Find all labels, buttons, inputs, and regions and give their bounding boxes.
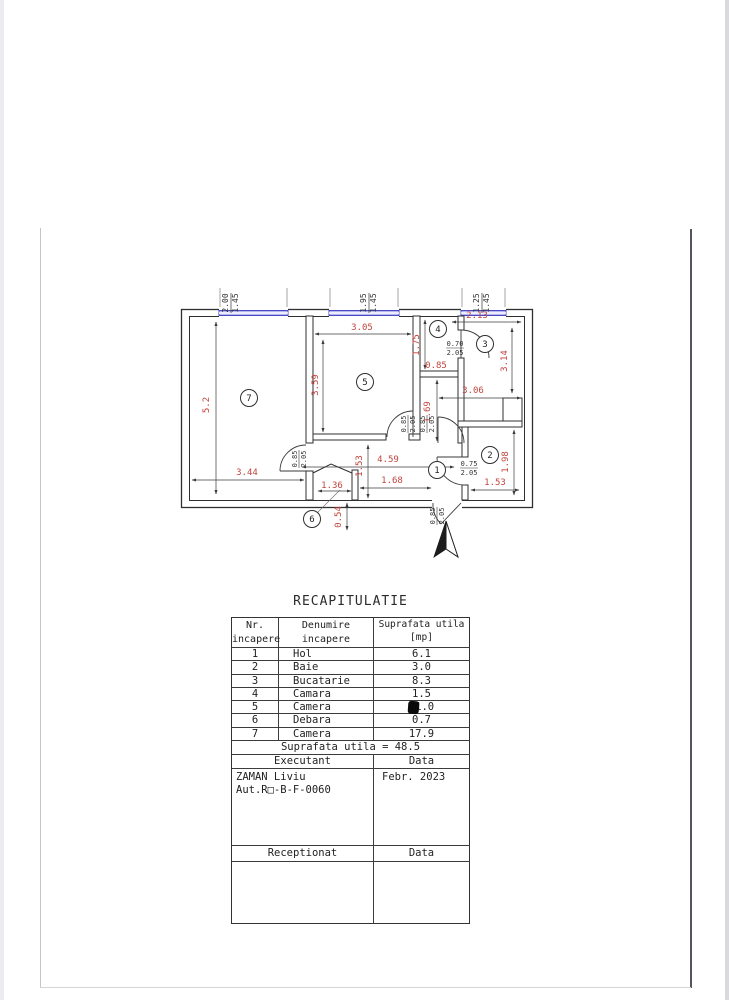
receptionat-label: Receptionat: [232, 846, 374, 861]
header-suprafata-line2: [mp]: [374, 632, 469, 645]
svg-text:3.05: 3.05: [351, 323, 373, 333]
door-label-channel: 0.85 2.05: [419, 415, 436, 433]
svg-text:1.36: 1.36: [321, 481, 343, 491]
header-nr-line2: incapere: [232, 633, 278, 647]
header-nr-line1: Nr.: [232, 619, 278, 633]
svg-text:2.05: 2.05: [409, 416, 417, 433]
scan-edge-left: [0, 0, 4, 1000]
entry-opening: [432, 498, 462, 509]
debara-door-symbol: [313, 464, 352, 473]
svg-text:2.05: 2.05: [447, 349, 464, 357]
svg-text:3.14: 3.14: [500, 350, 510, 372]
svg-text:2.00: 2.00: [221, 293, 230, 312]
executant-date: Febr. 2023: [374, 769, 469, 845]
table-row: 5 Camera 11.0: [232, 701, 469, 714]
svg-text:3.06: 3.06: [462, 386, 484, 396]
page-title: RECAPITULATIE: [231, 594, 470, 609]
svg-text:2.05: 2.05: [428, 416, 436, 433]
svg-text:1.95: 1.95: [359, 293, 368, 312]
svg-text:0.70: 0.70: [447, 340, 464, 348]
svg-text:0.85: 0.85: [425, 361, 447, 371]
signature-row: ZAMAN Liviu Aut.R□-B-F-0060 Febr. 2023: [232, 769, 469, 846]
svg-text:1.25: 1.25: [472, 293, 481, 312]
svg-text:1.53: 1.53: [355, 455, 365, 477]
svg-text:0.85: 0.85: [419, 416, 427, 433]
svg-text:7: 7: [246, 394, 251, 404]
svg-text:1.45: 1.45: [482, 293, 491, 312]
room-number-6: 6: [304, 511, 321, 528]
svg-text:1.53: 1.53: [484, 478, 506, 488]
room-number-3: 3: [477, 336, 494, 353]
table-row: 2 Baie 3.0: [232, 661, 469, 674]
executant-row: Executant Data: [232, 755, 469, 769]
svg-text:1.45: 1.45: [231, 293, 240, 312]
table-row: 3 Bucatarie 8.3: [232, 675, 469, 688]
north-arrow-icon: [434, 521, 458, 557]
svg-text:0.85: 0.85: [429, 508, 437, 525]
svg-text:4.59: 4.59: [377, 455, 399, 465]
svg-text:0.54: 0.54: [334, 506, 344, 528]
total-row: Suprafata utila = 48.5: [232, 741, 469, 755]
svg-text:5: 5: [362, 378, 367, 388]
svg-text:0.85: 0.85: [291, 451, 299, 468]
svg-text:2.05: 2.05: [461, 469, 478, 477]
door-label-camara: 0.70 2.05: [446, 340, 464, 357]
svg-text:2.13: 2.13: [466, 311, 488, 321]
window-label-1: 2.00 1.45: [221, 293, 240, 313]
door-label-room7: 0.85 2.05: [291, 450, 308, 468]
svg-text:3.44: 3.44: [236, 468, 258, 478]
recap-table: Nr. incapere Denumire incapere Suprafata…: [231, 617, 470, 924]
svg-text:1.75: 1.75: [412, 334, 422, 356]
room-number-1: 1: [429, 462, 446, 479]
room-number-5: 5: [357, 374, 374, 391]
svg-text:6: 6: [309, 515, 314, 525]
receptionat-data-label: Data: [374, 846, 469, 861]
svg-text:2.05: 2.05: [300, 451, 308, 468]
table-row: 1 Hol 6.1: [232, 648, 469, 661]
header-denumire-line1: Denumire: [279, 619, 373, 633]
receptionat-row: Receptionat Data: [232, 846, 469, 862]
svg-text:1.68: 1.68: [381, 476, 403, 486]
svg-text:0.85: 0.85: [400, 416, 408, 433]
svg-text:2: 2: [487, 451, 492, 461]
signature-empty-row: [232, 862, 469, 924]
page-frame-left: [40, 228, 41, 987]
table-header-row: Nr. incapere Denumire incapere Suprafata…: [232, 618, 469, 648]
page-frame-right: [690, 229, 692, 988]
room-number-2: 2: [482, 447, 499, 464]
scan-edge-right: [725, 0, 729, 1000]
table-row: 4 Camara 1.5: [232, 688, 469, 701]
door-label-baie: 0.75 2.05: [460, 460, 478, 477]
door-label-entry: 0.85 2.05: [429, 507, 446, 525]
svg-text:2.05: 2.05: [438, 508, 446, 525]
door-label-room5: 0.85 2.05: [400, 415, 417, 433]
svg-text:4: 4: [435, 325, 440, 335]
svg-text:3.59: 3.59: [311, 374, 321, 396]
svg-text:0.75: 0.75: [461, 460, 478, 468]
svg-text:1.98: 1.98: [501, 451, 511, 473]
svg-text:3: 3: [482, 340, 487, 350]
svg-text:1: 1: [434, 466, 439, 476]
table-row: 7 Camera 17.9: [232, 728, 469, 741]
header-denumire-line2: incapere: [279, 633, 373, 647]
page-frame-bottom: [40, 987, 691, 988]
executant-authorization: Aut.R□-B-F-0060: [236, 784, 373, 797]
svg-text:5.2: 5.2: [202, 397, 212, 413]
floor-plan: 2.00 1.45 1.95 1.45 1.25 1.45: [150, 265, 580, 575]
room-number-4: 4: [430, 321, 447, 338]
window-label-3: 1.25 1.45: [472, 293, 491, 313]
ink-blot: [408, 701, 420, 715]
executant-name: ZAMAN Liviu: [236, 771, 373, 784]
window-label-2: 1.95 1.45: [359, 293, 378, 313]
table-row: 6 Debara 0.7: [232, 714, 469, 727]
header-suprafata-line1: Suprafata utila: [374, 619, 469, 632]
executant-data-label: Data: [374, 755, 469, 768]
executant-label: Executant: [232, 755, 374, 768]
room-number-7: 7: [241, 390, 258, 407]
svg-text:1.45: 1.45: [369, 293, 378, 312]
